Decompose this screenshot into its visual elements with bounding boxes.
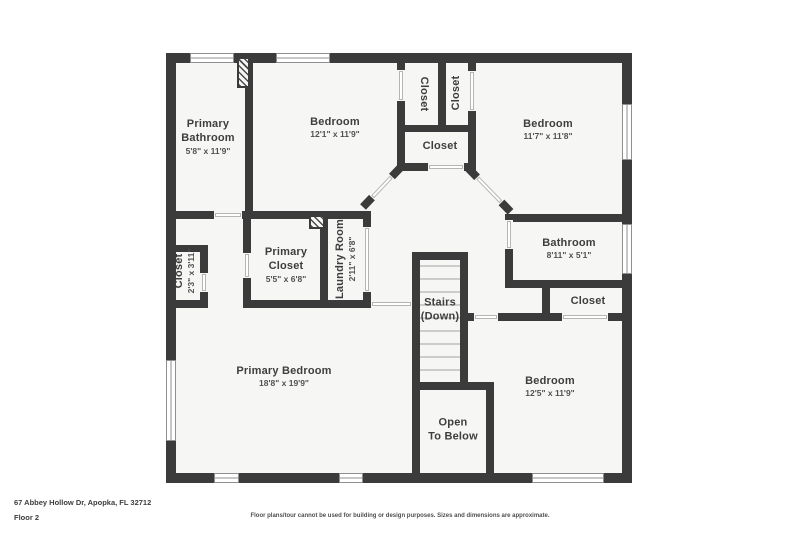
wall-segment bbox=[468, 63, 476, 71]
wall-segment bbox=[397, 63, 405, 70]
door-leaf bbox=[429, 165, 463, 169]
door-leaf bbox=[215, 213, 241, 217]
window bbox=[339, 473, 363, 483]
door-opening bbox=[428, 163, 464, 171]
wall-segment bbox=[412, 382, 494, 390]
door-opening bbox=[371, 300, 412, 308]
room-label-primary-closet: Primary Closet 5'5" x 6'8" bbox=[265, 245, 307, 285]
window bbox=[532, 473, 604, 483]
hatched-chase-block bbox=[237, 57, 250, 88]
room-label-closet-top-right: Closet bbox=[449, 76, 463, 111]
wall-segment bbox=[412, 252, 420, 473]
room-label-laundry-room: Laundry Room 2'11" x 6'8" bbox=[333, 219, 359, 299]
door-opening bbox=[363, 227, 371, 292]
room-label-bathroom: Bathroom 8'11" x 5'1" bbox=[542, 236, 596, 262]
wall-segment bbox=[363, 292, 371, 308]
window bbox=[622, 104, 632, 160]
window bbox=[190, 53, 234, 63]
stair-tread bbox=[420, 369, 460, 371]
wall-segment bbox=[166, 53, 632, 63]
door-leaf bbox=[475, 315, 497, 319]
wall-segment bbox=[498, 313, 562, 321]
room-label-closet-bedroom-right: Closet bbox=[571, 294, 606, 308]
wall-segment bbox=[460, 252, 468, 390]
door-leaf bbox=[563, 315, 607, 319]
wall-segment bbox=[200, 292, 208, 308]
wall-segment bbox=[460, 313, 474, 321]
stair-tread bbox=[420, 356, 460, 358]
wall-segment bbox=[243, 300, 373, 308]
door-leaf bbox=[365, 228, 369, 291]
door-opening bbox=[243, 253, 251, 278]
wall-segment bbox=[542, 288, 550, 313]
wall-segment bbox=[397, 125, 476, 132]
hatched-chase-block bbox=[309, 215, 325, 229]
floor-plan-page: Primary Bathroom 5'8" x 11'9" Bedroom 12… bbox=[0, 0, 800, 533]
wall-segment bbox=[438, 63, 446, 125]
wall-segment bbox=[512, 214, 632, 222]
door-opening bbox=[397, 70, 405, 101]
wall-segment bbox=[242, 211, 367, 219]
door-leaf bbox=[507, 221, 511, 248]
window bbox=[276, 53, 330, 63]
window bbox=[166, 360, 176, 441]
window bbox=[622, 224, 632, 274]
stair-tread bbox=[420, 343, 460, 345]
wall-segment bbox=[397, 101, 405, 171]
door-leaf bbox=[202, 274, 206, 291]
room-label-bedroom-bottom-right: Bedroom 12'5" x 11'9" bbox=[525, 374, 575, 400]
room-label-bedroom-top-right: Bedroom 11'7" x 11'8" bbox=[523, 117, 573, 143]
stair-tread bbox=[420, 265, 460, 267]
room-label-bedroom-top-left: Bedroom 12'1" x 11'9" bbox=[310, 115, 360, 141]
door-leaf bbox=[399, 71, 403, 100]
door-opening bbox=[505, 220, 513, 249]
door-leaf bbox=[470, 72, 474, 110]
wall-segment bbox=[363, 211, 371, 227]
footer-disclaimer: Floor plans/tour cannot be used for buil… bbox=[0, 513, 800, 519]
window bbox=[214, 473, 239, 483]
room-label-closet-small: Closet 2'3" x 3'11" bbox=[172, 249, 198, 294]
floor-plan-canvas: Primary Bathroom 5'8" x 11'9" Bedroom 12… bbox=[0, 0, 800, 533]
door-opening bbox=[214, 211, 242, 219]
wall-segment bbox=[200, 245, 208, 273]
stair-tread bbox=[420, 278, 460, 280]
wall-segment bbox=[243, 211, 251, 253]
door-opening bbox=[562, 313, 608, 321]
stair-tread bbox=[420, 330, 460, 332]
room-label-closet-center: Closet bbox=[423, 139, 458, 153]
wall-segment bbox=[505, 249, 513, 280]
room-label-primary-bedroom: Primary Bedroom 18'8" x 19'9" bbox=[236, 364, 331, 390]
door-opening bbox=[468, 71, 476, 111]
wall-segment bbox=[608, 313, 622, 321]
wall-segment bbox=[468, 111, 476, 171]
room-label-open-to-below: Open To Below bbox=[428, 416, 478, 445]
door-leaf bbox=[372, 302, 411, 306]
room-label-closet-top-left: Closet bbox=[417, 77, 431, 112]
door-leaf bbox=[245, 254, 249, 277]
room-label-primary-bathroom: Primary Bathroom 5'8" x 11'9" bbox=[181, 117, 235, 157]
room-label-stairs: Stairs (Down) bbox=[421, 296, 459, 325]
wall-segment bbox=[486, 382, 494, 473]
stair-tread bbox=[420, 291, 460, 293]
door-opening bbox=[200, 273, 208, 292]
wall-segment bbox=[166, 211, 214, 219]
wall-segment bbox=[505, 280, 632, 288]
footer-address: 67 Abbey Hollow Dr, Apopka, FL 32712 bbox=[14, 498, 151, 507]
door-opening bbox=[474, 313, 498, 321]
